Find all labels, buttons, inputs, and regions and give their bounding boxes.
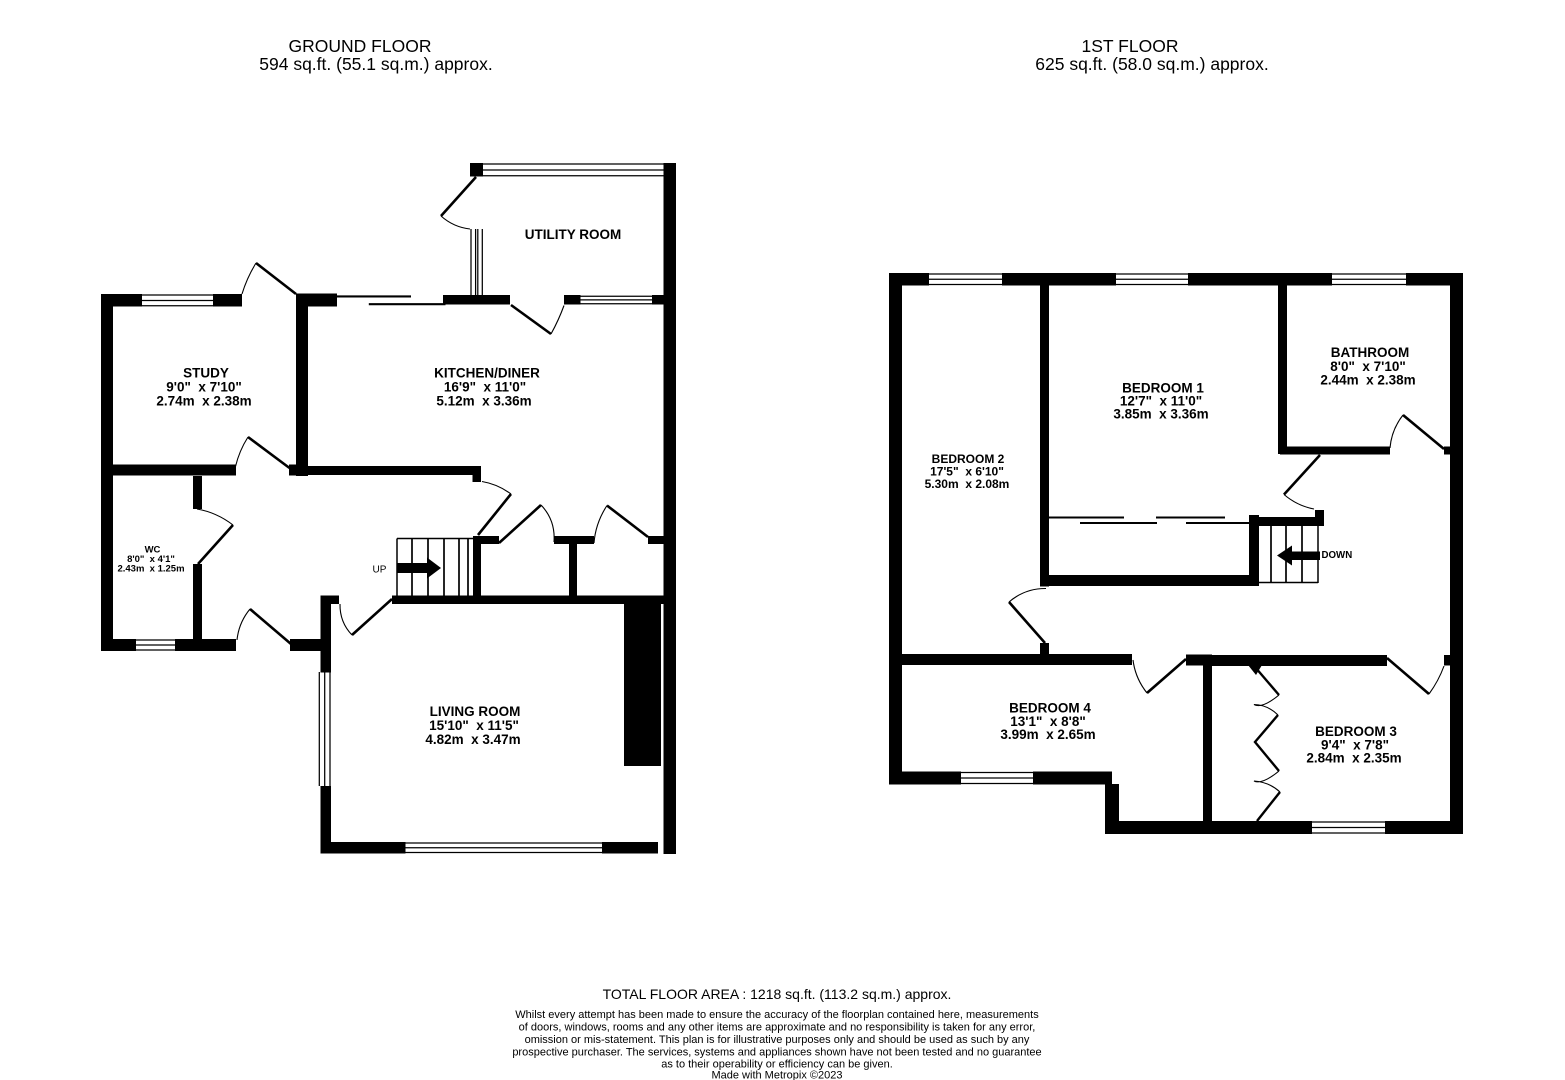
svg-text:2.43m x 1.25m: 2.43m x 1.25m: [117, 564, 184, 575]
svg-text:16'9" x 11'0": 16'9" x 11'0": [444, 380, 526, 395]
svg-text:TOTAL FLOOR AREA : 1218 sq.ft.: TOTAL FLOOR AREA : 1218 sq.ft. (113.2 sq…: [603, 986, 952, 1002]
svg-text:prospective purchaser. The ser: prospective purchaser. The services, sys…: [512, 1047, 1041, 1059]
svg-text:1ST FLOOR: 1ST FLOOR: [1082, 36, 1179, 56]
svg-text:STUDY: STUDY: [183, 366, 229, 381]
svg-text:3.99m x 2.65m: 3.99m x 2.65m: [1000, 727, 1095, 742]
svg-text:Made with Metropix ©2023: Made with Metropix ©2023: [711, 1070, 842, 1080]
svg-text:omission or mis-statement. Thi: omission or mis-statement. This plan is …: [525, 1034, 1030, 1046]
svg-text:KITCHEN/DINER: KITCHEN/DINER: [434, 366, 540, 381]
svg-text:UP: UP: [373, 564, 387, 575]
svg-text:of doors, windows, rooms and a: of doors, windows, rooms and any other i…: [519, 1022, 1036, 1034]
svg-text:BATHROOM: BATHROOM: [1331, 345, 1410, 360]
svg-text:LIVING ROOM: LIVING ROOM: [430, 704, 521, 719]
svg-text:2.44m x 2.38m: 2.44m x 2.38m: [1320, 373, 1415, 388]
svg-text:594 sq.ft. (55.1 sq.m.) approx: 594 sq.ft. (55.1 sq.m.) approx.: [259, 54, 492, 74]
svg-text:DOWN: DOWN: [1322, 550, 1353, 561]
svg-text:5.12m x 3.36m: 5.12m x 3.36m: [436, 394, 531, 409]
svg-text:2.74m x 2.38m: 2.74m x 2.38m: [156, 394, 251, 409]
svg-text:625 sq.ft. (58.0 sq.m.) approx: 625 sq.ft. (58.0 sq.m.) approx.: [1035, 54, 1268, 74]
svg-text:UTILITY ROOM: UTILITY ROOM: [525, 227, 622, 242]
svg-text:3.85m x 3.36m: 3.85m x 3.36m: [1113, 407, 1208, 422]
svg-text:5.30m x 2.08m: 5.30m x 2.08m: [925, 477, 1010, 491]
svg-text:Whilst every attempt has been: Whilst every attempt has been made to en…: [515, 1009, 1039, 1021]
svg-text:4.82m x 3.47m: 4.82m x 3.47m: [425, 732, 520, 747]
svg-text:2.84m x 2.35m: 2.84m x 2.35m: [1306, 751, 1401, 766]
svg-text:GROUND FLOOR: GROUND FLOOR: [289, 36, 432, 56]
svg-text:15'10" x 11'5": 15'10" x 11'5": [429, 718, 519, 733]
svg-text:9'0" x 7'10": 9'0" x 7'10": [166, 380, 242, 395]
